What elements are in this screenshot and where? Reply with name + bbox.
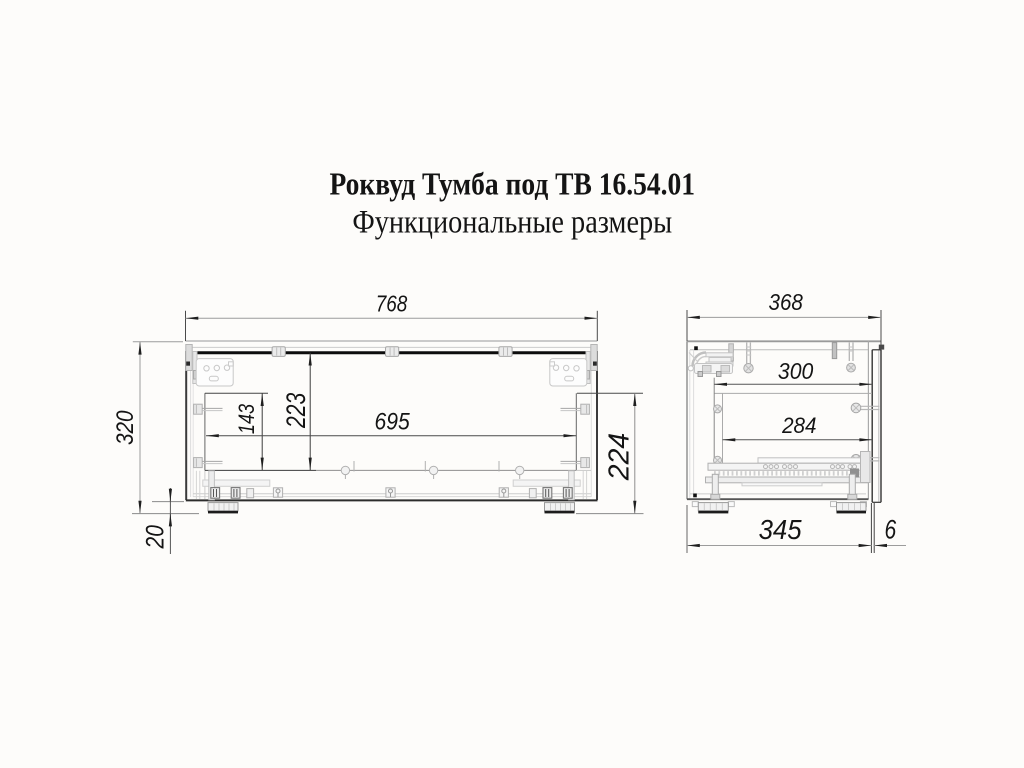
svg-text:20: 20 xyxy=(142,525,170,549)
svg-text:Функциональные размеры: Функциональные размеры xyxy=(352,204,672,240)
svg-text:345: 345 xyxy=(759,514,802,545)
svg-text:6: 6 xyxy=(884,514,896,544)
svg-text:695: 695 xyxy=(375,408,411,435)
svg-text:368: 368 xyxy=(769,289,804,315)
svg-text:143: 143 xyxy=(234,403,259,434)
svg-text:300: 300 xyxy=(778,358,814,384)
svg-text:224: 224 xyxy=(603,433,635,481)
svg-text:Роквуд Тумба под ТВ 16.54.01: Роквуд Тумба под ТВ 16.54.01 xyxy=(330,165,696,201)
svg-text:223: 223 xyxy=(281,393,311,429)
svg-text:284: 284 xyxy=(781,413,816,438)
svg-text:768: 768 xyxy=(376,290,408,316)
svg-text:320: 320 xyxy=(112,410,139,445)
